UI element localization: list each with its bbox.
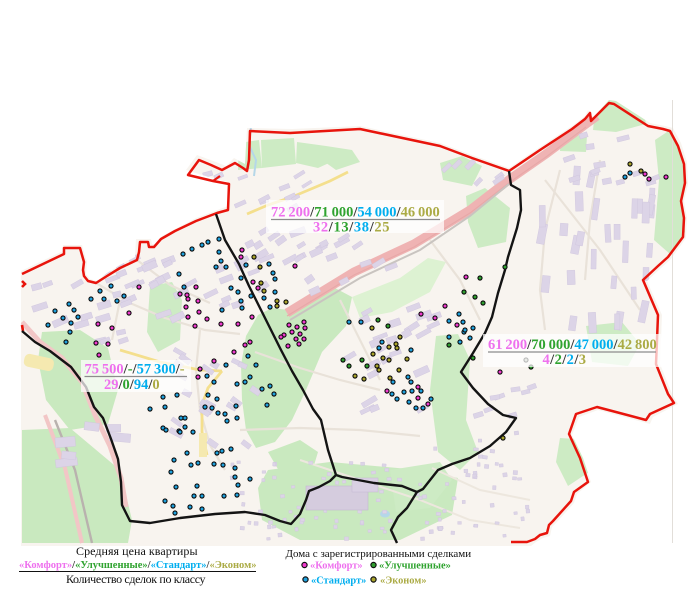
- svg-text:29/0/94/0: 29/0/94/0: [104, 377, 160, 393]
- svg-text:«Эконом»: «Эконом»: [380, 576, 427, 587]
- svg-text:«Комфорт»/«Улучшенные»/«Станда: «Комфорт»/«Улучшенные»/«Стандарт»/«Эконо…: [19, 560, 257, 571]
- svg-text:72 200/71 000/54 000/46 000: 72 200/71 000/54 000/46 000: [271, 205, 440, 221]
- svg-text:4/2/2/3: 4/2/2/3: [543, 352, 587, 368]
- svg-text:Дома с зарегистрированными сде: Дома с зарегистрированными сделками: [286, 548, 472, 560]
- svg-text:«Улучшенные»: «Улучшенные»: [379, 561, 451, 572]
- svg-text:61 200/70 000/47 000/42 800: 61 200/70 000/47 000/42 800: [488, 337, 657, 353]
- svg-text:Количество сделок по классу: Количество сделок по классу: [66, 572, 206, 586]
- svg-text:32/13/38/25: 32/13/38/25: [313, 220, 390, 236]
- svg-text:«Комфорт»: «Комфорт»: [310, 561, 363, 572]
- svg-text:«Стандарт»: «Стандарт»: [311, 576, 366, 587]
- svg-text:75 500/-/57 300/-: 75 500/-/57 300/-: [85, 362, 185, 378]
- svg-text:Средняя цена квартиры: Средняя цена квартиры: [76, 544, 198, 558]
